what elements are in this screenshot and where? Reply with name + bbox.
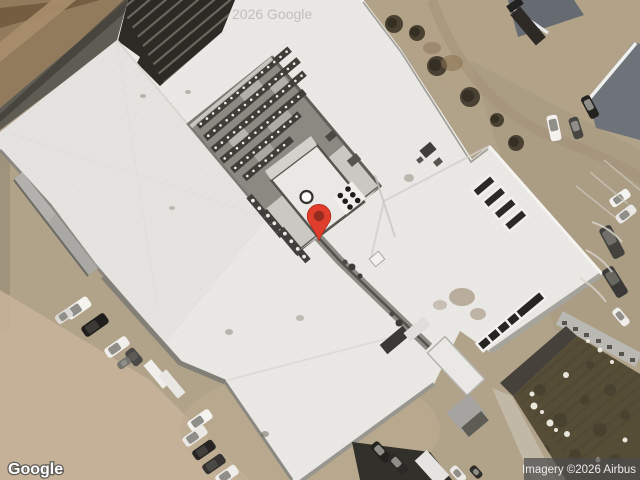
svg-text:Google: Google (8, 461, 63, 478)
svg-text:Imagery ©2026 Airbus: Imagery ©2026 Airbus (522, 464, 636, 476)
svg-text:2026 Google: 2026 Google (232, 6, 312, 22)
